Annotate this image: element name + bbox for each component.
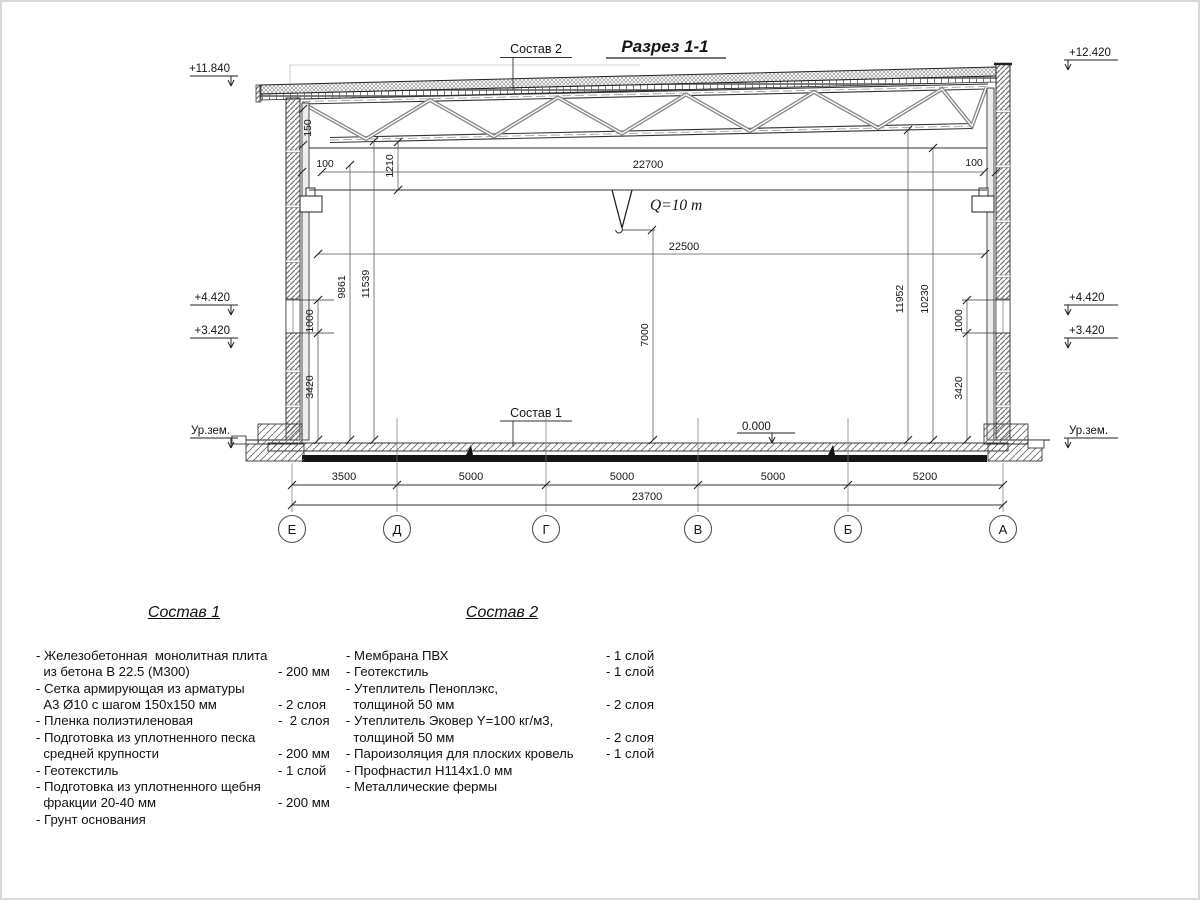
left-crane-bracket [300, 196, 322, 212]
material-item: - Подготовка из уплотненного песка средн… [36, 730, 332, 763]
material-qty: - 200 мм [278, 664, 332, 680]
material-item: - Металлические фермы [346, 779, 658, 795]
dim-right-total-height: 11952 [894, 285, 906, 314]
sostav2-block: Состав 2 - Мембрана ПВХ- 1 слой- Геотекс… [346, 604, 658, 795]
right-column [987, 88, 994, 440]
axis-letter: А [999, 522, 1008, 537]
elevation-symbol [1064, 438, 1118, 448]
material-item: - Подготовка из уплотненного щебня фракц… [36, 779, 332, 812]
material-qty: - 2 слоя [278, 697, 332, 713]
elevation-right-ground: Ур.зем. [1069, 425, 1108, 437]
dim-left-lower: 3420 [304, 375, 316, 399]
left-footing [258, 424, 302, 444]
dim-right-lower: 3420 [953, 376, 965, 400]
dim-runway-span: 22700 [633, 159, 664, 171]
bay-dim: 5000 [761, 471, 785, 483]
dim-gap-right: 100 [965, 157, 983, 169]
material-qty: - 200 мм [278, 746, 332, 762]
dimension-ticks [298, 105, 1000, 444]
axis-letter: Е [288, 522, 297, 537]
material-qty: - 2 слоя [606, 697, 658, 713]
dim-truss-support: 150 [302, 119, 314, 137]
left-wall-panel [286, 98, 300, 440]
material-name: - Металлические фермы [346, 779, 602, 795]
bay-dim: 5200 [913, 471, 937, 483]
elevation-symbol [1064, 305, 1118, 315]
bay-dim: 5000 [459, 471, 483, 483]
elevation-left-upper: +4.420 [195, 292, 231, 304]
material-item: - Грунт основания [36, 812, 332, 828]
material-qty: - 1 слой [278, 763, 332, 779]
dim-gap-left: 100 [316, 158, 334, 170]
axis-letter: В [694, 522, 703, 537]
material-name: - Железобетонная монолитная плита из бет… [36, 648, 274, 681]
dim-left-total-height: 11539 [360, 270, 372, 299]
material-item: - Геотекстиль- 1 слой [36, 763, 332, 779]
hook-cables [612, 190, 632, 228]
sostav1-reference: Состав 1 [510, 406, 562, 420]
blueprint-page: { "drawing": { "title": "Разрез 1-1", "l… [0, 0, 1200, 900]
material-item: - Пароизоляция для плоских кровель- 1 сл… [346, 746, 658, 762]
section-drawing: Разрез 1-1 [0, 0, 1200, 575]
material-name: - Сетка армирующая из арматуры А3 Ø10 с … [36, 681, 274, 714]
elevation-left-roof: +11.840 [189, 63, 230, 75]
sostav2-reference: Состав 2 [510, 42, 562, 56]
axis-letter: Д [393, 522, 402, 537]
floor-membrane-band [302, 455, 987, 462]
material-qty: - 1 слой [606, 664, 658, 680]
elevation-symbol [190, 305, 238, 315]
crane-hook: Q=10 т [612, 190, 702, 233]
dim-left-rail-height: 9861 [336, 275, 348, 299]
material-name: - Пароизоляция для плоских кровель [346, 746, 602, 762]
floor-slab [268, 443, 1008, 462]
material-name: - Геотекстиль [346, 664, 602, 680]
drawing-title: Разрез 1-1 [621, 37, 708, 56]
elevation-symbol [1064, 338, 1118, 348]
elevation-right-lower: +3.420 [1069, 325, 1105, 337]
dim-left-window: 1000 [304, 309, 316, 333]
material-name: - Пленка полиэтиленовая [36, 713, 274, 729]
elevation-symbol [190, 76, 238, 86]
material-name: - Профнастил Н114х1.0 мм [346, 763, 602, 779]
sostav1-title: Состав 1 [36, 604, 332, 622]
sostav2-title: Состав 2 [346, 604, 658, 622]
dim-right-window: 1000 [953, 309, 965, 333]
material-name: - Геотекстиль [36, 763, 274, 779]
material-item: - Утеплитель Эковер Y=100 кг/м3, толщино… [346, 713, 658, 746]
left-footing-pad [246, 444, 304, 461]
material-name: - Утеплитель Пеноплэкс, толщиной 50 мм [346, 681, 602, 714]
right-wall-panel [996, 64, 1010, 440]
material-name: - Утеплитель Эковер Y=100 кг/м3, толщино… [346, 713, 602, 746]
zero-level-arrow [737, 433, 795, 443]
dimension-lines: 22700 22500 100 100 1210 150 9861 11539 … [286, 105, 1010, 444]
sostav2-list: - Мембрана ПВХ- 1 слой- Геотекстиль- 1 с… [346, 648, 658, 795]
floor-concrete-band [268, 443, 1008, 451]
zero-level-label: 0.000 [742, 421, 771, 433]
elevation-right-roof: +12.420 [1069, 47, 1111, 59]
right-bracket-stub [979, 188, 988, 196]
material-item: - Мембрана ПВХ- 1 слой [346, 648, 658, 664]
dim-clear-height: 7000 [639, 323, 651, 347]
crane-capacity-label: Q=10 т [650, 197, 702, 214]
right-crane-bracket [972, 196, 994, 212]
bay-dim: 5000 [610, 471, 634, 483]
left-bracket-stub [306, 188, 315, 196]
roof-drip-edge [256, 85, 261, 102]
material-name: - Подготовка из уплотненного песка средн… [36, 730, 274, 763]
dim-right-rail-height: 10230 [919, 284, 931, 313]
axis-letter: Б [844, 522, 853, 537]
material-item: - Железобетонная монолитная плита из бет… [36, 648, 332, 681]
sostav1-list: - Железобетонная монолитная плита из бет… [36, 648, 332, 828]
material-qty: - 2 слоя [278, 713, 332, 729]
material-item: - Утеплитель Пеноплэкс, толщиной 50 мм- … [346, 681, 658, 714]
material-item: - Пленка полиэтиленовая- 2 слоя [36, 713, 332, 729]
material-qty: - 2 слоя [606, 730, 658, 746]
right-footing-toe [1028, 440, 1044, 448]
reference-labels: Состав 2 Состав 1 0.000 [500, 42, 795, 447]
bay-dim: 3500 [332, 471, 356, 483]
hook-curl [616, 228, 623, 233]
material-qty: - 1 слой [606, 648, 658, 664]
dim-crane-span: 22500 [669, 241, 700, 253]
elevation-symbol [190, 438, 238, 448]
sostav1-block: Состав 1 - Железобетонная монолитная пли… [36, 604, 332, 828]
material-item: - Геотекстиль- 1 слой [346, 664, 658, 680]
axis-letter: Г [542, 522, 549, 537]
material-name: - Мембрана ПВХ [346, 648, 602, 664]
elevation-left-lower: +3.420 [195, 325, 231, 337]
material-name: - Подготовка из уплотненного щебня фракц… [36, 779, 274, 812]
elevation-symbol [1064, 60, 1118, 70]
vertical-dim-lines [318, 130, 967, 440]
elevation-left-ground: Ур.зем. [191, 425, 230, 437]
section-title: Разрез 1-1 [606, 37, 726, 58]
elevation-symbol [190, 338, 238, 348]
grid-axes: 3500 5000 5000 5000 5200 23700 Е Д Г В Б… [279, 418, 1017, 543]
material-item: - Сетка армирующая из арматуры А3 Ø10 с … [36, 681, 332, 714]
material-qty: - 200 мм [278, 795, 332, 811]
material-item: - Профнастил Н114х1.0 мм [346, 763, 658, 779]
material-qty: - 1 слой [606, 746, 658, 762]
material-name: - Грунт основания [36, 812, 274, 828]
right-footing [984, 424, 1028, 444]
elevation-right-upper: +4.420 [1069, 292, 1105, 304]
total-dim: 23700 [632, 491, 663, 503]
dim-beam-depth: 1210 [384, 154, 396, 178]
